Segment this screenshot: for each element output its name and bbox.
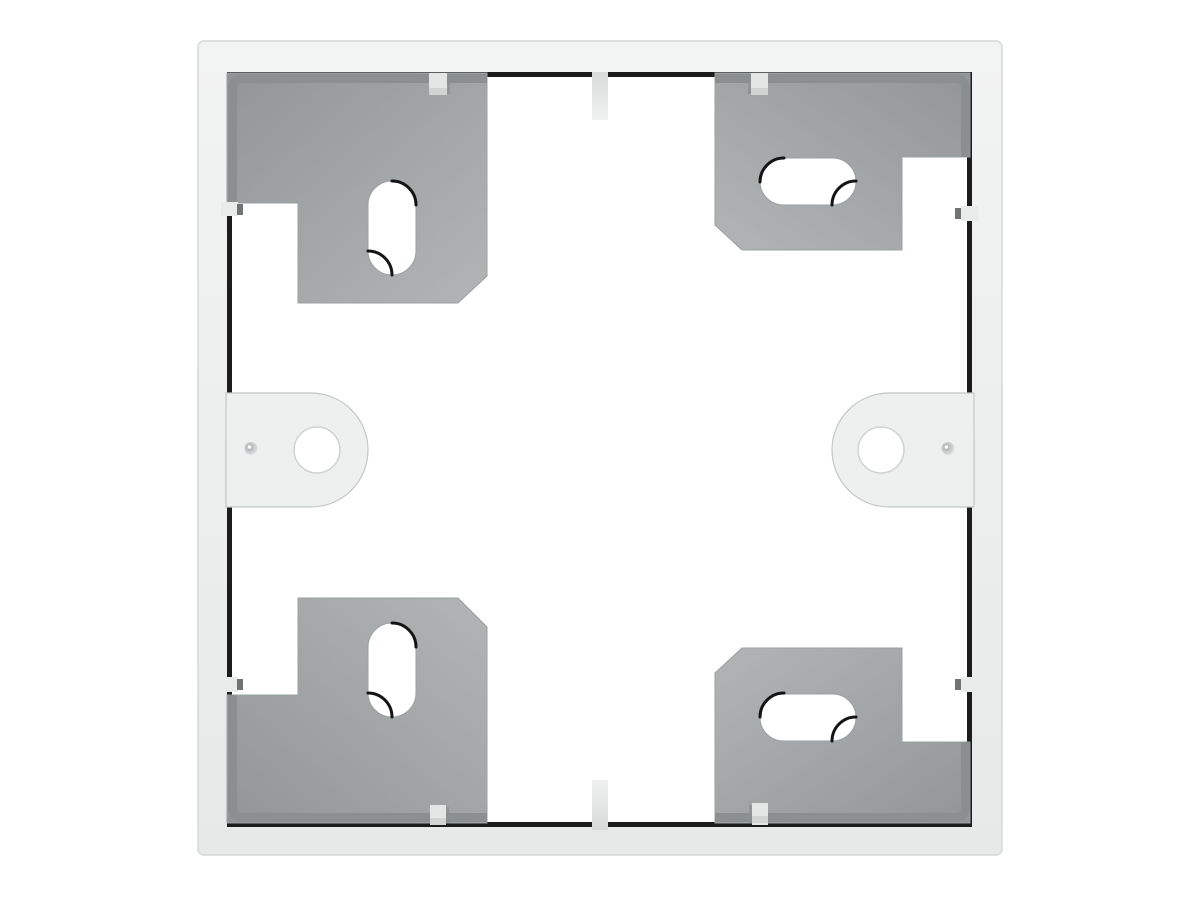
side-clip-left-lower [221, 677, 243, 692]
retainer-clip-shade [751, 88, 768, 95]
alignment-notch-bottom [592, 780, 608, 830]
pin-dimple-highlight [945, 445, 949, 449]
side-clip-left-upper [221, 202, 243, 216]
wall-box-frame-render [0, 0, 1200, 900]
side-clip-notch [955, 208, 961, 219]
side-clip-notch [237, 679, 243, 690]
retainer-clip-shadow [446, 807, 449, 823]
retainer-clip-shadow [748, 75, 751, 94]
retainer-clip-shadow [749, 805, 752, 823]
side-clip-right-lower [955, 677, 978, 692]
side-clip-body [961, 206, 978, 221]
screw-tab-right [832, 393, 974, 507]
side-clip-notch [955, 679, 961, 690]
pin-dimple-left [245, 442, 258, 455]
side-clip-body [221, 202, 238, 216]
pin-dimple-highlight [248, 445, 252, 449]
cable-slot-top-right [760, 158, 856, 205]
retainer-clip-shadow [447, 75, 450, 94]
retainer-clip-bottom-right [749, 803, 768, 825]
side-clip-body [221, 677, 238, 692]
product-image-stage [0, 0, 1200, 900]
alignment-notch-top [592, 72, 608, 120]
retainer-clip-top-left [429, 73, 450, 95]
side-clip-notch [237, 204, 243, 215]
screw-hole-left [294, 427, 340, 473]
side-clip-right-upper [955, 206, 978, 221]
retainer-clip-shade [752, 816, 768, 823]
cable-slot-bottom-right [760, 694, 856, 741]
pin-dimple-right [942, 442, 955, 455]
screw-tab-left [226, 393, 368, 507]
retainer-clip-top-right [748, 73, 768, 95]
screw-hole-right [858, 427, 904, 473]
retainer-clip-bottom-left [430, 805, 449, 825]
retainer-clip-shade [429, 88, 447, 95]
retainer-clip-shade [430, 818, 446, 825]
cable-slot-bottom-left [368, 623, 416, 717]
cable-slot-top-left [368, 181, 416, 275]
side-clip-body [961, 677, 978, 692]
